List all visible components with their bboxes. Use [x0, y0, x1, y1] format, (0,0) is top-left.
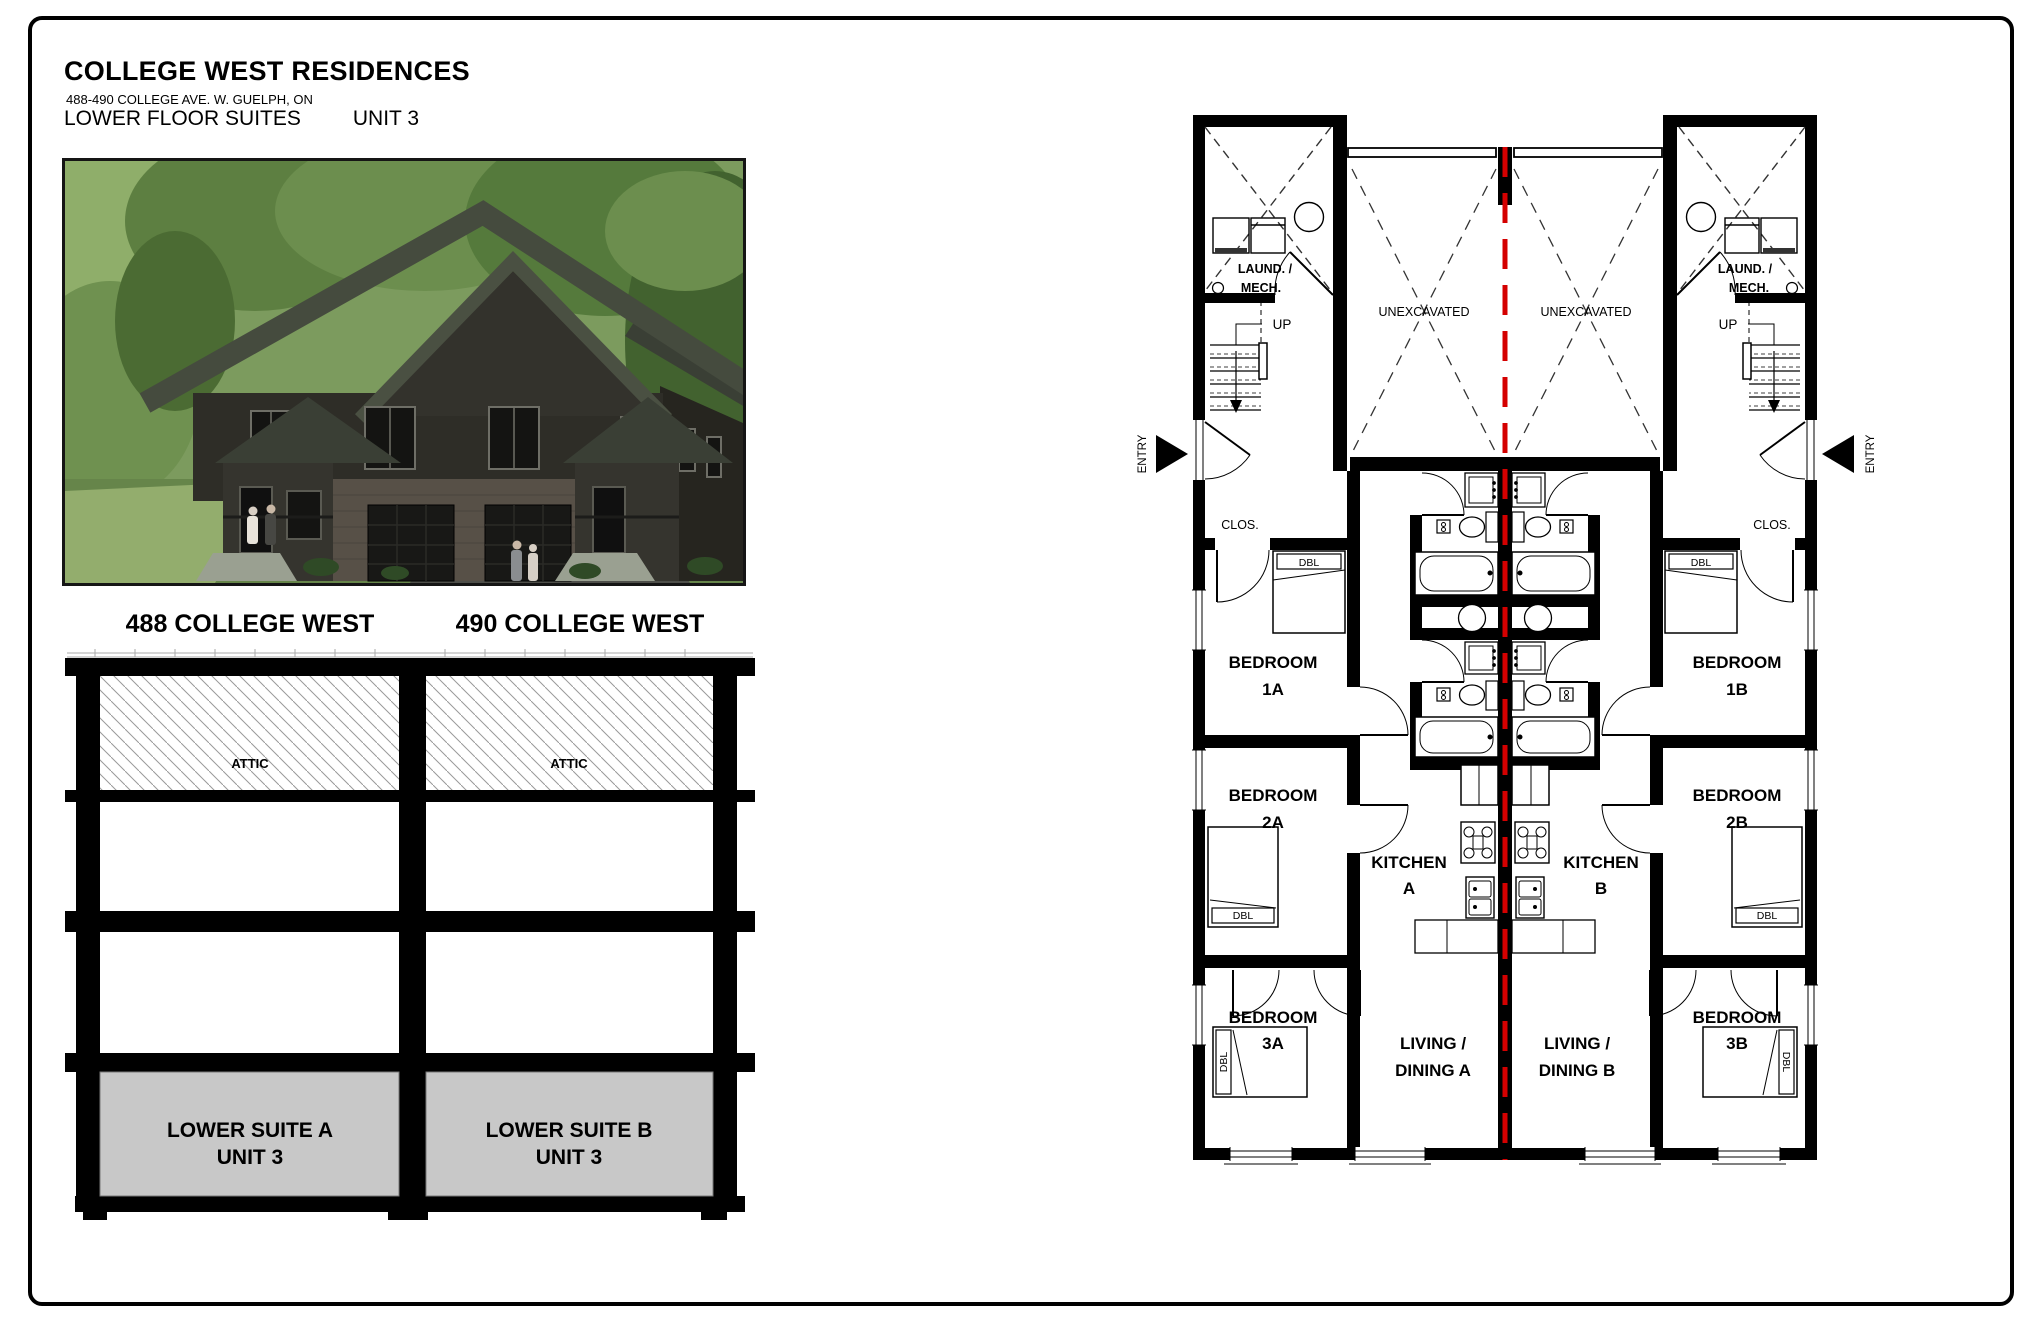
steps-left [196, 553, 297, 581]
living-b-label2: DINING B [1539, 1061, 1616, 1080]
handrail [1259, 343, 1267, 379]
kitchen-b-label: KITCHEN [1563, 853, 1639, 872]
toilet-tank [1486, 512, 1498, 542]
bedroom-3b-number: 3B [1726, 1034, 1748, 1053]
kitchen-b-letter: B [1595, 879, 1607, 898]
water-tank [1295, 203, 1324, 232]
bedroom-1b-number: 1B [1726, 680, 1748, 699]
entry-a-label: ENTRY [1137, 434, 1149, 473]
floor-plan: LAUND. / MECH. UP UNEXCAVATED ENTRY CLOS… [1120, 105, 1890, 1180]
unexcavated-a-label: UNEXCAVATED [1379, 305, 1470, 319]
unexcavated-b-label: UNEXCAVATED [1541, 305, 1632, 319]
bedroom-3b-label: BEDROOM [1693, 1008, 1782, 1027]
water-heater [1459, 605, 1486, 632]
attic-label-right: ATTIC [550, 756, 588, 771]
building-rendering [62, 158, 746, 586]
bathroom-2 [1415, 640, 1498, 757]
bedroom-3a-number: 3A [1262, 1034, 1284, 1053]
dbl-1a-label: DBL [1299, 557, 1320, 569]
attic-label-left: ATTIC [231, 756, 269, 771]
stair-arrow [1230, 400, 1242, 413]
bedroom-1a-number: 1A [1262, 680, 1284, 699]
washer [1213, 218, 1249, 253]
dbl-2a-label: DBL [1233, 910, 1254, 922]
laundry-fixtures [1213, 203, 1324, 294]
caption-488: 488 COLLEGE WEST [80, 610, 420, 639]
roof-strip [67, 649, 753, 657]
living-a-label2: DINING A [1395, 1061, 1471, 1080]
closet-a-label: CLOS. [1221, 518, 1259, 532]
page-title: COLLEGE WEST RESIDENCES [64, 56, 470, 87]
bedroom-2b-number: 2B [1726, 813, 1748, 832]
dryer [1251, 218, 1285, 253]
entry [1156, 420, 1250, 480]
subtitle-text: LOWER FLOOR SUITES [64, 107, 301, 130]
laundry-b-label2: MECH. [1729, 281, 1769, 295]
laundry-a-label: LAUND. / [1238, 262, 1293, 276]
foundation-window [1348, 148, 1496, 157]
closet-door [1217, 550, 1269, 602]
page-address: 488-490 COLLEGE AVE. W. GUELPH, ON [66, 92, 313, 107]
page-subtitle: LOWER FLOOR SUITESUNIT 3 [64, 107, 419, 131]
bedroom-3a-label: BEDROOM [1229, 1008, 1318, 1027]
dbl-1b-label: DBL [1691, 557, 1712, 569]
up-b-label: UP [1719, 317, 1738, 332]
entry-arrow-icon [1156, 435, 1188, 473]
post-center [399, 676, 426, 1196]
lower-suite-b-label: LOWER SUITE B [486, 1119, 653, 1142]
up-a-label: UP [1273, 317, 1292, 332]
demising-wall [1498, 147, 1512, 1160]
post-right [713, 676, 737, 1196]
entry-b-label: ENTRY [1865, 434, 1877, 473]
suite-a-geometry [1156, 115, 1505, 1164]
living-a-label: LIVING / [1400, 1034, 1466, 1053]
closet-b-label: CLOS. [1753, 518, 1791, 532]
lower-suite-a-label: LOWER SUITE A [167, 1119, 333, 1142]
cross-section: ATTIC ATTIC LOWER SUITE A UNIT 3 LOWER S… [55, 645, 765, 1225]
unit-text: UNIT 3 [353, 107, 419, 130]
post-left [76, 676, 100, 1196]
bedroom-2b-label: BEDROOM [1693, 786, 1782, 805]
kitchen-a-letter: A [1403, 879, 1415, 898]
laundry-a-label2: MECH. [1241, 281, 1281, 295]
lower-suite-b-unit: UNIT 3 [536, 1146, 603, 1169]
suite-b-geometry [1505, 115, 1854, 1164]
entry-door-right [593, 487, 625, 553]
bedroom-1b-label: BEDROOM [1693, 653, 1782, 672]
toilet-bowl [1460, 685, 1485, 705]
panel-symbol [1213, 283, 1224, 294]
bathroom-1 [1415, 473, 1498, 595]
lower-suite-a-unit: UNIT 3 [217, 1146, 284, 1169]
bedroom-1a-label: BEDROOM [1229, 653, 1318, 672]
kitchen-a-label: KITCHEN [1371, 853, 1447, 872]
caption-490: 490 COLLEGE WEST [410, 610, 750, 639]
garage-door-left [368, 505, 454, 581]
toilet-bowl [1460, 517, 1485, 537]
toilet-tank [1486, 681, 1498, 710]
bedroom-2a-number: 2A [1262, 813, 1284, 832]
house-rendering [65, 161, 743, 583]
dbl-2b-label: DBL [1757, 910, 1778, 922]
sheet: COLLEGE WEST RESIDENCES 488-490 COLLEGE … [0, 0, 2040, 1320]
stairs [1210, 301, 1267, 413]
dbl-3a-label: DBL [1218, 1052, 1230, 1073]
laundry-b-label: LAUND. / [1718, 262, 1773, 276]
living-b-label: LIVING / [1544, 1034, 1610, 1053]
dbl-3b-label: DBL [1780, 1052, 1792, 1073]
bedroom-2a-label: BEDROOM [1229, 786, 1318, 805]
counter [1415, 920, 1498, 953]
